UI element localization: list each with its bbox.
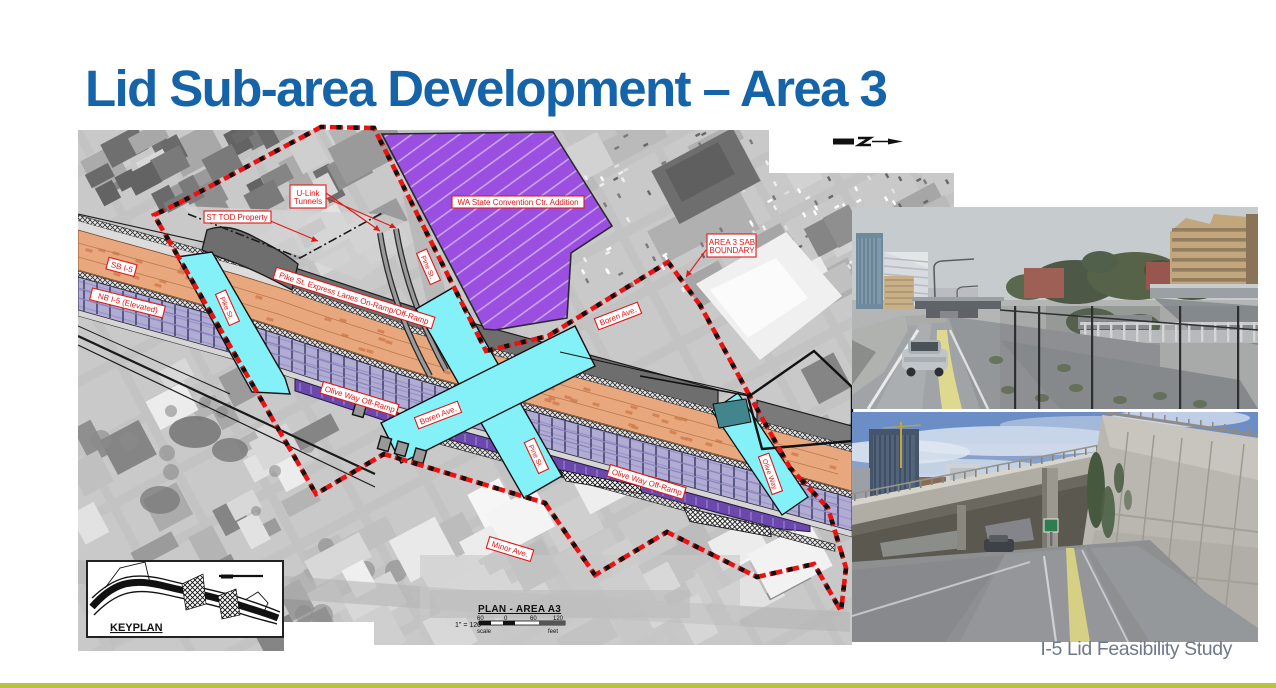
svg-text:1" = 120': 1" = 120' xyxy=(455,622,482,629)
svg-text:WA State Convention Ctr. Addit: WA State Convention Ctr. Addition xyxy=(457,198,578,207)
svg-text:feet: feet xyxy=(548,629,558,635)
svg-text:ST TOD Property: ST TOD Property xyxy=(206,213,267,222)
svg-text:Tunnels: Tunnels xyxy=(294,197,322,206)
svg-text:scale: scale xyxy=(477,629,492,635)
svg-text:PLAN - AREA A3: PLAN - AREA A3 xyxy=(478,604,561,615)
svg-text:BOUNDARY: BOUNDARY xyxy=(709,246,755,255)
svg-text:KEYPLAN: KEYPLAN xyxy=(110,622,163,634)
